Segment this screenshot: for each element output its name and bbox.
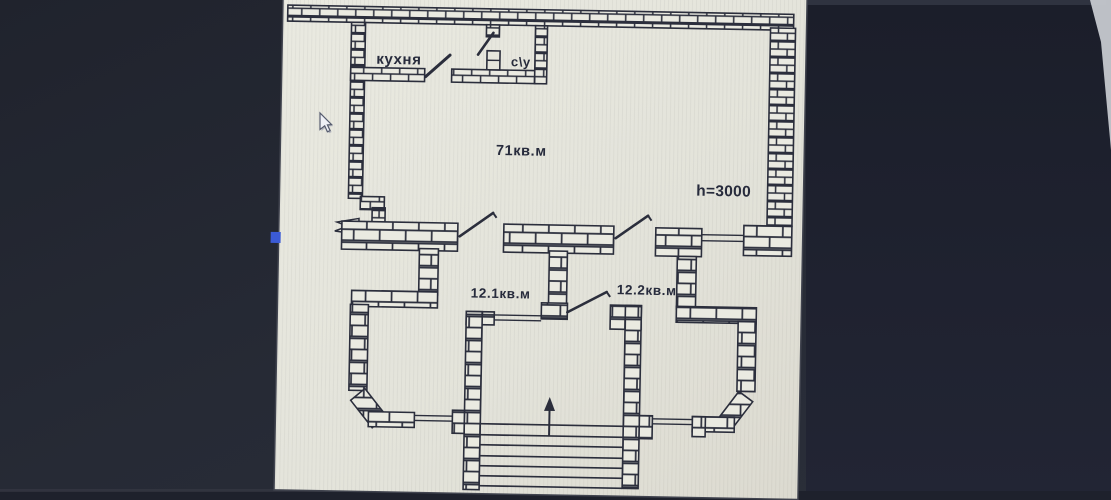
label-kitchen: кухня [376, 51, 421, 69]
lintel-bay-left-top [414, 415, 454, 416]
top-edge-strip [806, 0, 1106, 5]
wall-vertical-middle [548, 251, 567, 307]
lintel-stair-bottom [494, 320, 541, 321]
label-ceiling-height: h=3000 [696, 183, 751, 201]
bay-right-stub [692, 417, 705, 437]
lintel-stair-top [494, 315, 541, 316]
photo-of-screen: кухня с\у 71кв.м h=3000 12.1кв.м 12.2кв.… [0, 0, 1111, 500]
lintel-right-bottom [702, 241, 744, 242]
wall-bathroom-partition [452, 69, 540, 84]
label-room-12-2: 12.2кв.м [617, 282, 677, 298]
wall-right [767, 28, 796, 226]
blue-marker [271, 232, 281, 243]
bay-right-wall [737, 321, 756, 391]
lintel-bay-right-top [652, 419, 692, 420]
bay-left-bottom-wall [368, 412, 414, 428]
label-main-area: 71кв.м [496, 143, 547, 160]
wall-bathroom-right [535, 26, 548, 84]
wall-right-bottom-block [743, 225, 792, 256]
right-dark-panel [806, 0, 1111, 500]
wall-middle-pier [541, 303, 567, 319]
floorplan-scene: кухня с\у 71кв.м h=3000 12.1кв.м 12.2кв.… [0, 0, 1111, 500]
wall-kitchen-partition [351, 67, 425, 81]
stair-left-wall [463, 311, 482, 489]
lintel-right-top [702, 235, 744, 236]
bay-left-wall [349, 304, 369, 390]
label-room-12-1: 12.1кв.м [471, 285, 531, 301]
stair-left-notch [452, 410, 464, 433]
stair-direction-line [549, 408, 550, 436]
label-bathroom: с\у [511, 54, 531, 69]
wall-vertical-left [419, 249, 439, 295]
lintel-bay-left-bottom [414, 420, 454, 421]
wall-hall-segment-b [503, 224, 613, 254]
wall-hall-segment-a [341, 221, 457, 251]
stair-right-wall [622, 305, 641, 488]
floorplan-sheet-group: кухня с\у 71кв.м h=3000 12.1кв.м 12.2кв.… [266, 0, 807, 500]
stair-right-notch [639, 416, 652, 439]
lintel-bay-right-bottom [652, 424, 692, 425]
wall-vertical-right [676, 256, 696, 309]
wall-left [348, 22, 365, 198]
wall-hall-segment-c [655, 228, 702, 257]
